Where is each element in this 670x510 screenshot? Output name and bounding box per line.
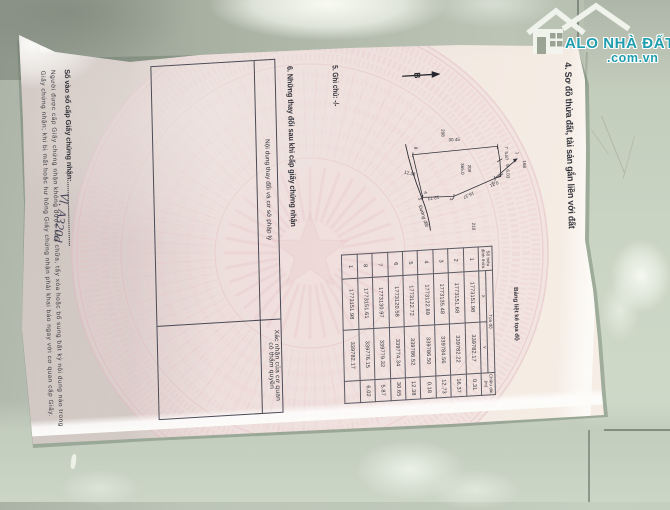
svg-text:365.0: 365.0 [460, 163, 465, 175]
svg-text:8: 8 [413, 147, 418, 150]
svg-text:168: 168 [522, 160, 527, 168]
svg-text:3: 3 [449, 198, 454, 201]
svg-text:208: 208 [440, 129, 445, 137]
svg-text:7: 7 [504, 146, 509, 149]
svg-text:4: 4 [423, 191, 428, 194]
svg-text:12.73: 12.73 [427, 195, 439, 202]
svg-text:209: 209 [467, 164, 472, 172]
svg-text:5: 5 [417, 198, 422, 201]
svg-text:210: 210 [471, 222, 476, 230]
svg-text:6.03: 6.03 [505, 169, 510, 179]
svg-text:Đường đất: Đường đất [417, 204, 431, 228]
svg-text:12.38: 12.38 [404, 170, 417, 177]
svg-text:5.87: 5.87 [504, 151, 509, 161]
svg-text:1: 1 [515, 152, 520, 155]
svg-text:30.45: 30.45 [449, 137, 461, 142]
